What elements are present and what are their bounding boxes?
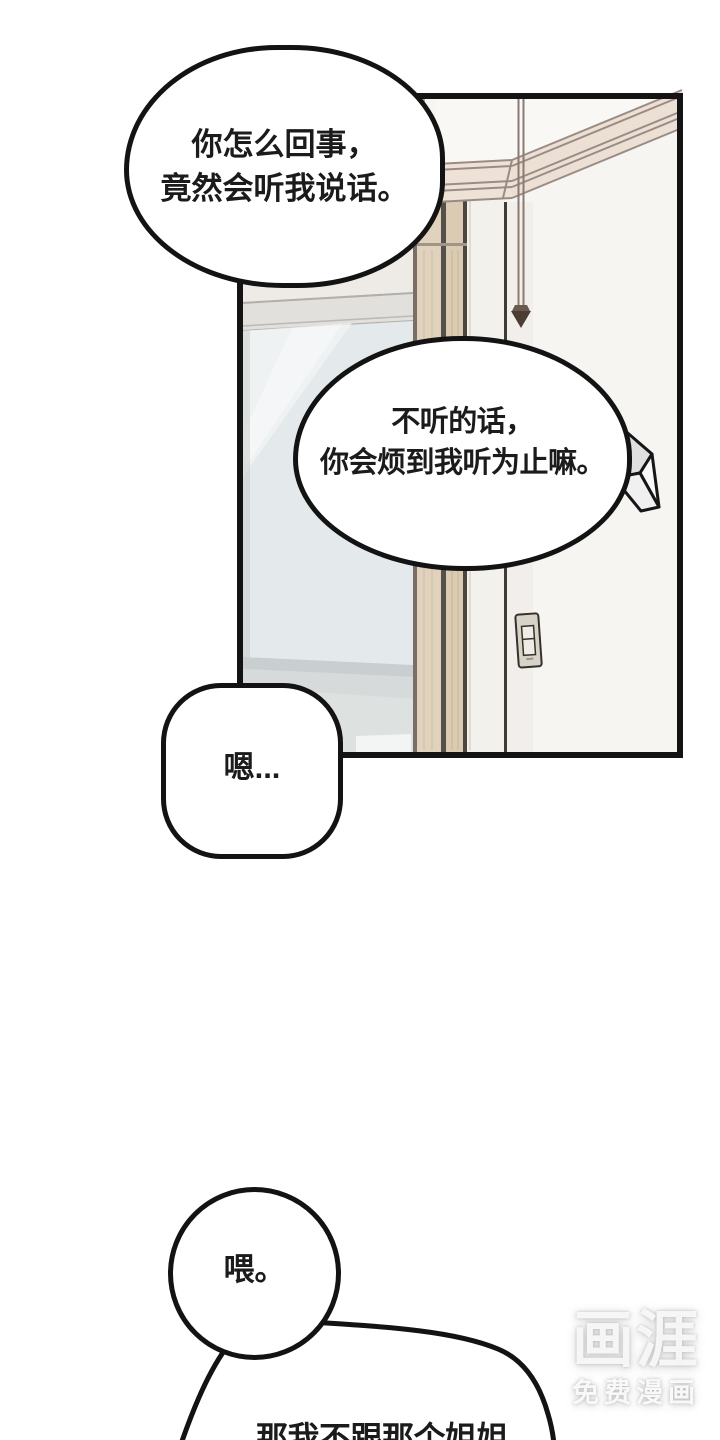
watermark: 画涯 免费漫画 [556,1308,716,1408]
watermark-logo: 画涯 [556,1308,716,1374]
speech-bubble-1: 你怎么回事， 竟然会听我说话。 [124,45,445,288]
speech-bubble-2-text: 不听的话， 你会烦到我听为止嘛。 [320,402,605,484]
frame-header-line [417,243,467,246]
speech-bubble-4-text: 喂。 [224,1250,286,1290]
watermark-tagline: 免费漫画 [556,1378,716,1408]
glass-reflection-patch [356,734,411,752]
speech-bubble-3-text: 嗯... [224,748,281,788]
speech-line: 你会烦到我听为止嘛。 [320,443,605,484]
speech-bubble-5-text: 那我不跟那个姐姐 [256,1413,508,1440]
speech-bubble-1-text: 你怎么回事， 竟然会听我说话。 [161,123,409,211]
light-switch [515,613,542,667]
speech-line: 你怎么回事， [161,123,409,167]
speech-bubble-4: 喂。 [168,1187,341,1360]
speech-line: 喂。 [224,1250,286,1290]
comic-page: 你怎么回事， 竟然会听我说话。 不听的话， 你会烦到我听为止嘛。 嗯... 喂。… [0,0,720,1440]
speech-line: 不听的话， [320,402,605,443]
speech-bubble-2: 不听的话， 你会烦到我听为止嘛。 [293,336,632,571]
speech-bubble-3: 嗯... [161,683,343,859]
lamp-rod-finial [512,305,530,311]
speech-line: 竟然会听我说话。 [161,167,409,211]
speech-line: 嗯... [224,748,281,788]
